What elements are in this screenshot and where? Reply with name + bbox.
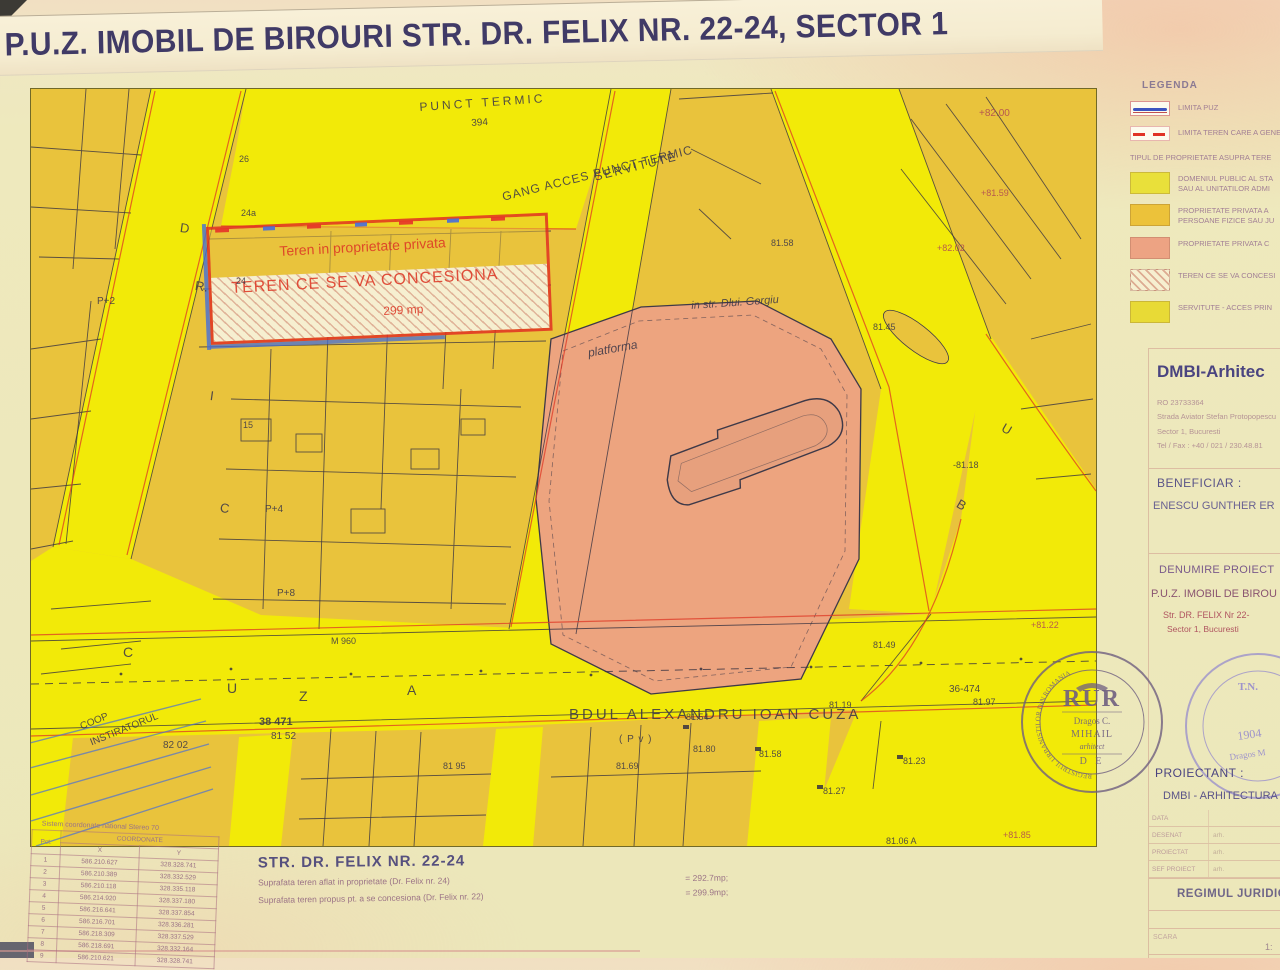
coordinates-table: Pct. COORDONATE X Y 1586.210.627328.328.… bbox=[27, 829, 220, 969]
map-label: P+8 bbox=[277, 589, 295, 599]
map-label: 81.69 bbox=[616, 762, 639, 771]
rur-stamp-role: arhitect bbox=[1080, 742, 1106, 751]
project-city: Sector 1, Bucuresti bbox=[1167, 624, 1239, 634]
map-label: 26 bbox=[239, 155, 249, 164]
legend-swatch-yellow bbox=[1130, 172, 1170, 194]
legend-heading: LEGENDA bbox=[1142, 80, 1280, 91]
legend-item-label: PROPRIETATE PRIVATA APERSOANE FIZICE SAU… bbox=[1178, 204, 1274, 226]
map-label: R. bbox=[194, 279, 209, 294]
title-block-row-label: PROIECTAT bbox=[1149, 849, 1208, 856]
footer-street-title: STR. DR. FELIX NR. 22-24 bbox=[258, 849, 738, 871]
page-title: P.U.Z. IMOBIL DE BIROURI STR. DR. FELIX … bbox=[0, 6, 949, 64]
rur-stamp-title: RUR bbox=[1063, 686, 1121, 712]
footer-line2-value: = 299.9mp; bbox=[685, 887, 728, 898]
map-label: D bbox=[179, 221, 190, 235]
project-name: P.U.Z. IMOBIL DE BIROU bbox=[1151, 588, 1277, 600]
footer-line1-value: = 292.7mp; bbox=[685, 873, 728, 883]
legend-swatch-salmon bbox=[1130, 237, 1170, 259]
legend-item: SERVITUTE - ACCES PRIN bbox=[1130, 301, 1280, 323]
oar-stamp-name: Dragos M bbox=[1229, 747, 1266, 762]
firm-name: DMBI-Arhitec bbox=[1157, 362, 1265, 382]
legend-swatch-items: DOMENIUL PUBLIC AL STASAU AL UNITATILOR … bbox=[1128, 172, 1280, 323]
legend-item-label: PROPRIETATE PRIVATA C bbox=[1178, 237, 1269, 249]
project-street: Str. DR. FELIX Nr 22- bbox=[1163, 610, 1250, 620]
architect-order-stamp: T.N. 1904 Dragos M bbox=[1180, 648, 1280, 808]
map-label: 81.54 bbox=[686, 713, 709, 722]
point-number: 3 bbox=[30, 878, 59, 891]
coord-x: 586.210.621 bbox=[56, 951, 135, 966]
map-label: BDUL ALEXANDRU IOAN CUZA bbox=[569, 707, 861, 722]
footer-line2-text: Suprafata teren propus pt. a se concesio… bbox=[258, 891, 484, 905]
map-label: U bbox=[227, 681, 237, 695]
legend-item-label: DOMENIUL PUBLIC AL STASAU AL UNITATILOR … bbox=[1178, 172, 1273, 194]
legend-item-label: LIMITA TEREN CARE A GENER bbox=[1178, 126, 1280, 138]
scale-value: 1: bbox=[1265, 942, 1273, 952]
scale-label: SCARA bbox=[1153, 934, 1177, 941]
map-label: +81.85 bbox=[1003, 831, 1031, 840]
legend: LEGENDA LIMITA PUZLIMITA TEREN CARE A GE… bbox=[1128, 78, 1280, 340]
rur-stamp-name2: MIHAIL bbox=[1071, 729, 1113, 740]
title-block-row-value: arh. bbox=[1208, 861, 1280, 877]
beneficiary-label: BENEFICIAR : bbox=[1157, 476, 1242, 490]
firm-address: RO 23733364 Strada Aviator Stefan Protop… bbox=[1157, 396, 1276, 453]
map-label: 81.97 bbox=[973, 698, 996, 707]
firm-city: Sector 1, Bucuresti bbox=[1157, 427, 1220, 436]
map-label: 81 52 bbox=[271, 732, 296, 742]
map-label: ( P v ) bbox=[619, 735, 652, 745]
legend-line-items: LIMITA PUZLIMITA TEREN CARE A GENER bbox=[1128, 101, 1280, 141]
footer-line1-text: Suprafata teren aflat in proprietate (Dr… bbox=[258, 876, 450, 888]
map-label: 24a bbox=[241, 209, 256, 218]
oar-stamp-year: 1904 bbox=[1236, 726, 1262, 743]
legend-item: TEREN CE SE VA CONCESI bbox=[1130, 269, 1280, 291]
legend-swatch-hatch bbox=[1130, 269, 1170, 291]
title-block-row-label: DESENAT bbox=[1149, 832, 1208, 839]
legend-item-label: TEREN CE SE VA CONCESI bbox=[1178, 269, 1275, 281]
legend-swatch-serv bbox=[1130, 301, 1170, 323]
scanned-puz-plan: { "title": "P.U.Z. IMOBIL DE BIROURI STR… bbox=[0, 0, 1280, 958]
beneficiary-name: ENESCU GUNTHER ER bbox=[1153, 500, 1275, 512]
map-label: +81.59 bbox=[981, 189, 1009, 198]
point-number: 8 bbox=[28, 938, 57, 951]
point-number: 9 bbox=[27, 950, 56, 963]
map-label: 38 471 bbox=[259, 717, 293, 728]
map-label: P+2 bbox=[97, 297, 115, 307]
rur-stamp-name1: Dragos C. bbox=[1074, 716, 1111, 726]
rur-stamp-de: D E bbox=[1080, 756, 1105, 767]
rur-stamp: REGISTRUL URBANISTILOR DIN ROMANIA RUR D… bbox=[1018, 648, 1166, 796]
footer-area-line-2: Suprafata teren propus pt. a se concesio… bbox=[258, 887, 728, 905]
legend-item: PROPRIETATE PRIVATA C bbox=[1130, 237, 1280, 259]
map-label: M 960 bbox=[331, 637, 356, 646]
map-label: Z bbox=[299, 689, 308, 703]
map-label: 394 bbox=[471, 118, 488, 129]
title-block-row-value: arh. bbox=[1208, 827, 1280, 843]
title-block-row: PROIECTATarh. bbox=[1149, 844, 1280, 861]
footer-notes: STR. DR. FELIX NR. 22-24 Suprafata teren… bbox=[258, 849, 738, 903]
map-drawing bbox=[31, 89, 1096, 846]
point-number: 1 bbox=[31, 854, 60, 867]
map-label: C bbox=[219, 501, 230, 515]
firm-street: Strada Aviator Stefan Protopopescu bbox=[1157, 412, 1276, 421]
legal-regime-label: REGIMUL JURIDIC bbox=[1177, 888, 1280, 900]
site-plan-map: PUNCT TERMIC394SERVITUTEGANG ACCES PUNCT… bbox=[30, 88, 1097, 847]
firm-reg: RO 23733364 bbox=[1157, 398, 1204, 407]
map-label: C bbox=[123, 645, 133, 659]
legend-section-heading: TIPUL DE PROPRIETATE ASUPRA TERE bbox=[1130, 153, 1280, 162]
legend-swatch-line-red bbox=[1130, 126, 1170, 141]
title-block-table: DATADESENATarh.PROIECTATarh.SEF PROIECTa… bbox=[1149, 810, 1280, 878]
col-header-pct: Pct. bbox=[31, 830, 61, 855]
title-block-row-label: SEF PROIECT bbox=[1149, 866, 1208, 873]
coordinates-table-block: Sistem coordonate national Stereo 70 Pct… bbox=[23, 820, 236, 970]
map-label: 81.27 bbox=[823, 787, 846, 796]
map-label: 81.80 bbox=[693, 745, 716, 754]
map-label: +82.00 bbox=[979, 109, 1010, 119]
legend-item: DOMENIUL PUBLIC AL STASAU AL UNITATILOR … bbox=[1130, 172, 1280, 194]
legend-item-label: SERVITUTE - ACCES PRIN bbox=[1178, 301, 1272, 313]
coord-y: 328.328.741 bbox=[135, 954, 214, 969]
oar-stamp-tn: T.N. bbox=[1238, 681, 1258, 693]
point-number: 4 bbox=[29, 890, 58, 903]
map-label: 81.23 bbox=[903, 757, 926, 766]
firm-phone: Tel / Fax : +40 / 021 / 230.48.81 bbox=[1157, 441, 1263, 450]
map-label: 24 bbox=[236, 277, 246, 286]
map-label: 82 02 bbox=[163, 741, 188, 751]
map-label: P+4 bbox=[265, 505, 283, 515]
map-label: +81.22 bbox=[1031, 621, 1059, 630]
title-strip: P.U.Z. IMOBIL DE BIROURI STR. DR. FELIX … bbox=[0, 0, 1103, 76]
point-number: 6 bbox=[28, 914, 57, 927]
legend-swatch-orange bbox=[1130, 204, 1170, 226]
title-block-row-value: arh. bbox=[1208, 844, 1280, 860]
map-label: 81.45 bbox=[873, 323, 896, 332]
map-label: 81.58 bbox=[771, 239, 794, 248]
legend-item-label: LIMITA PUZ bbox=[1178, 101, 1218, 113]
map-label: 81 95 bbox=[443, 762, 466, 771]
title-block-row-label: DATA bbox=[1149, 815, 1208, 822]
title-block-row: DESENATarh. bbox=[1149, 827, 1280, 844]
map-label: 299 mp bbox=[383, 303, 424, 317]
map-label: 81.19 bbox=[829, 701, 852, 710]
legend-item: LIMITA PUZ bbox=[1130, 101, 1280, 116]
legend-item: LIMITA TEREN CARE A GENER bbox=[1130, 126, 1280, 141]
map-label: -81.18 bbox=[953, 461, 979, 470]
map-label: 15 bbox=[243, 421, 253, 430]
map-label: 81.49 bbox=[873, 641, 896, 650]
map-label: 81.06 A bbox=[886, 837, 917, 846]
point-number: 7 bbox=[28, 926, 57, 939]
footer-area-line-1: Suprafata teren aflat in proprietate (Dr… bbox=[258, 873, 728, 888]
map-label: +82.02 bbox=[937, 244, 965, 253]
designer-name: DMBI - ARHITECTURA bbox=[1163, 790, 1278, 802]
title-block-row-value bbox=[1208, 810, 1280, 826]
point-number: 2 bbox=[30, 866, 59, 879]
title-block-row: DATA bbox=[1149, 810, 1280, 827]
legend-swatch-line-blue bbox=[1130, 101, 1170, 116]
map-label: 36-474 bbox=[949, 685, 980, 695]
point-number: 5 bbox=[29, 902, 58, 915]
title-block-row: SEF PROIECTarh. bbox=[1149, 861, 1280, 878]
project-name-label: DENUMIRE PROIECT bbox=[1159, 564, 1274, 576]
map-label: A bbox=[407, 683, 416, 697]
map-label: 81.58 bbox=[759, 750, 782, 759]
designer-label: PROIECTANT : bbox=[1155, 766, 1244, 780]
legend-item: PROPRIETATE PRIVATA APERSOANE FIZICE SAU… bbox=[1130, 204, 1280, 226]
